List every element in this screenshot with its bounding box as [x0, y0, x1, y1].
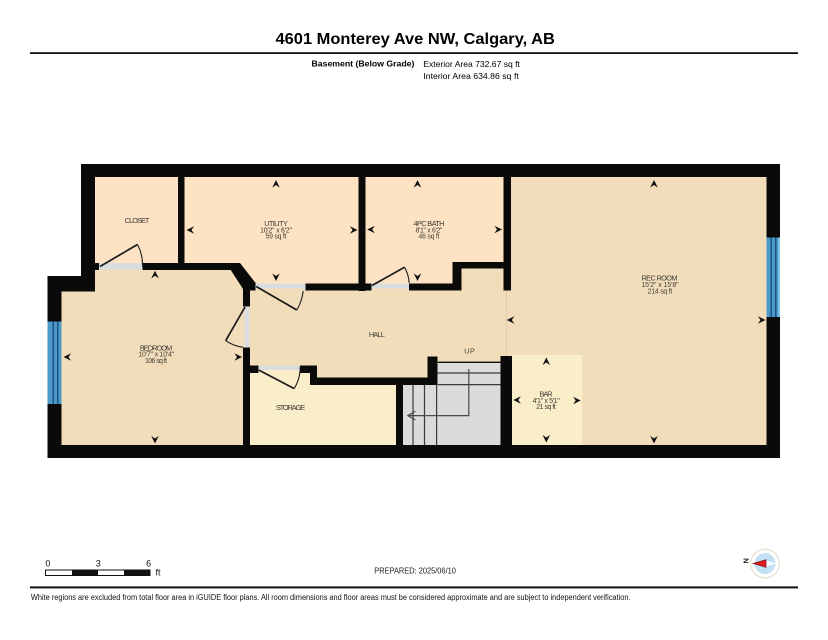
- svg-text:6: 6: [146, 558, 151, 568]
- svg-text:3: 3: [96, 558, 101, 568]
- svg-text:46 sq ft: 46 sq ft: [419, 234, 440, 241]
- svg-text:Interior Area 634.86 sq ft: Interior Area 634.86 sq ft: [423, 71, 519, 81]
- svg-text:CLOSET: CLOSET: [125, 216, 150, 225]
- svg-text:N: N: [741, 558, 750, 563]
- svg-text:White regions are excluded fro: White regions are excluded from total fl…: [31, 593, 631, 602]
- svg-text:STORAGE: STORAGE: [276, 403, 305, 412]
- svg-text:21 sq ft: 21 sq ft: [536, 404, 556, 411]
- svg-text:0: 0: [45, 558, 50, 568]
- svg-text:214 sq ft: 214 sq ft: [648, 288, 673, 295]
- svg-text:ft: ft: [156, 567, 162, 577]
- svg-text:4601 Monterey Ave NW, Calgary,: 4601 Monterey Ave NW, Calgary, AB: [276, 31, 555, 48]
- svg-text:106 sq ft: 106 sq ft: [145, 358, 167, 365]
- svg-text:HALL: HALL: [369, 330, 385, 339]
- svg-text:UP: UP: [464, 347, 475, 356]
- svg-text:Basement (Below Grade): Basement (Below Grade): [312, 59, 415, 69]
- svg-text:PREPARED: 2025/06/10: PREPARED: 2025/06/10: [374, 565, 456, 575]
- svg-text:59 sq ft: 59 sq ft: [266, 234, 287, 241]
- svg-text:Exterior Area 732.67 sq ft: Exterior Area 732.67 sq ft: [423, 59, 520, 69]
